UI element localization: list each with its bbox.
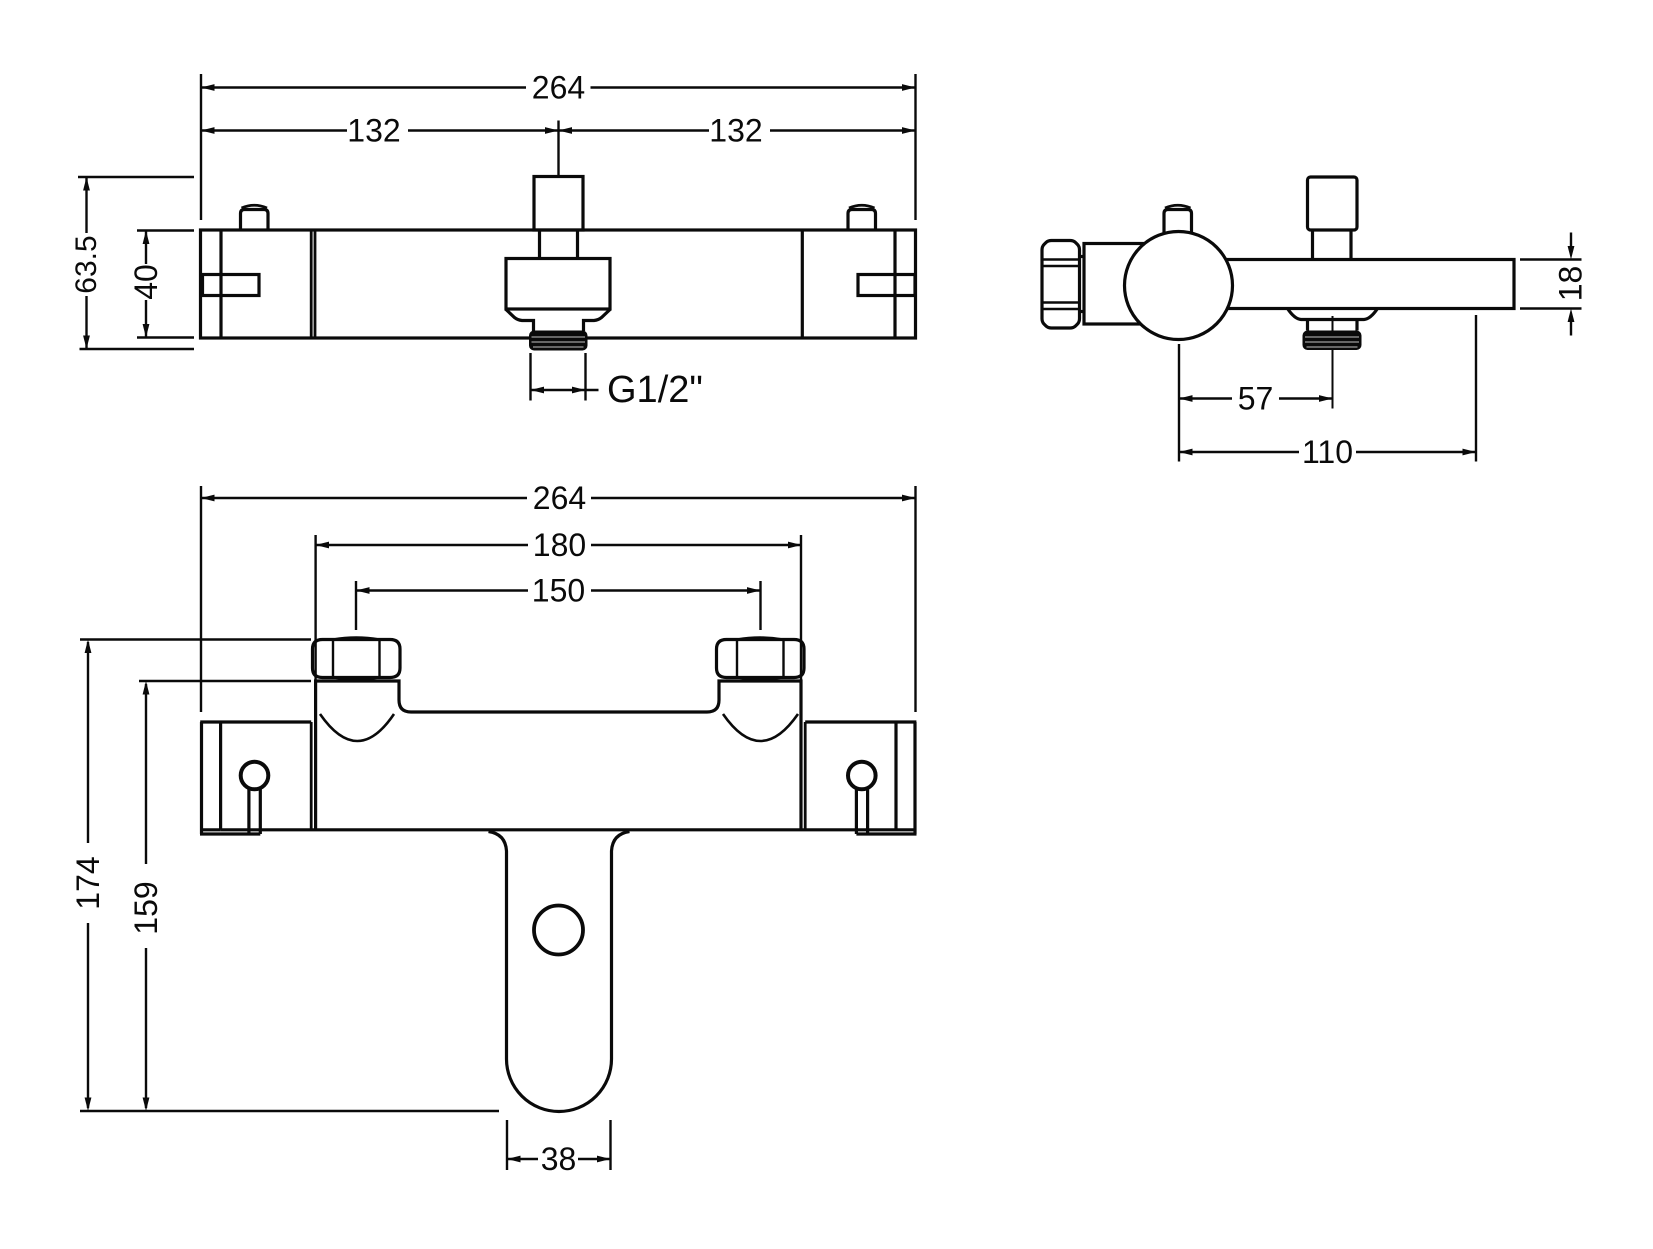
svg-text:G1/2": G1/2" (607, 369, 703, 411)
svg-text:38: 38 (541, 1141, 577, 1177)
svg-text:57: 57 (1238, 381, 1274, 417)
svg-text:63.5: 63.5 (70, 235, 103, 293)
svg-text:132: 132 (709, 113, 762, 149)
svg-text:150: 150 (532, 573, 585, 609)
svg-text:132: 132 (347, 113, 400, 149)
svg-text:174: 174 (70, 856, 106, 909)
svg-text:180: 180 (533, 527, 586, 563)
svg-text:159: 159 (128, 881, 164, 934)
svg-text:18: 18 (1553, 266, 1589, 302)
svg-text:40: 40 (128, 264, 164, 300)
svg-text:264: 264 (532, 70, 585, 106)
svg-text:110: 110 (1302, 434, 1353, 470)
svg-text:264: 264 (533, 480, 586, 516)
